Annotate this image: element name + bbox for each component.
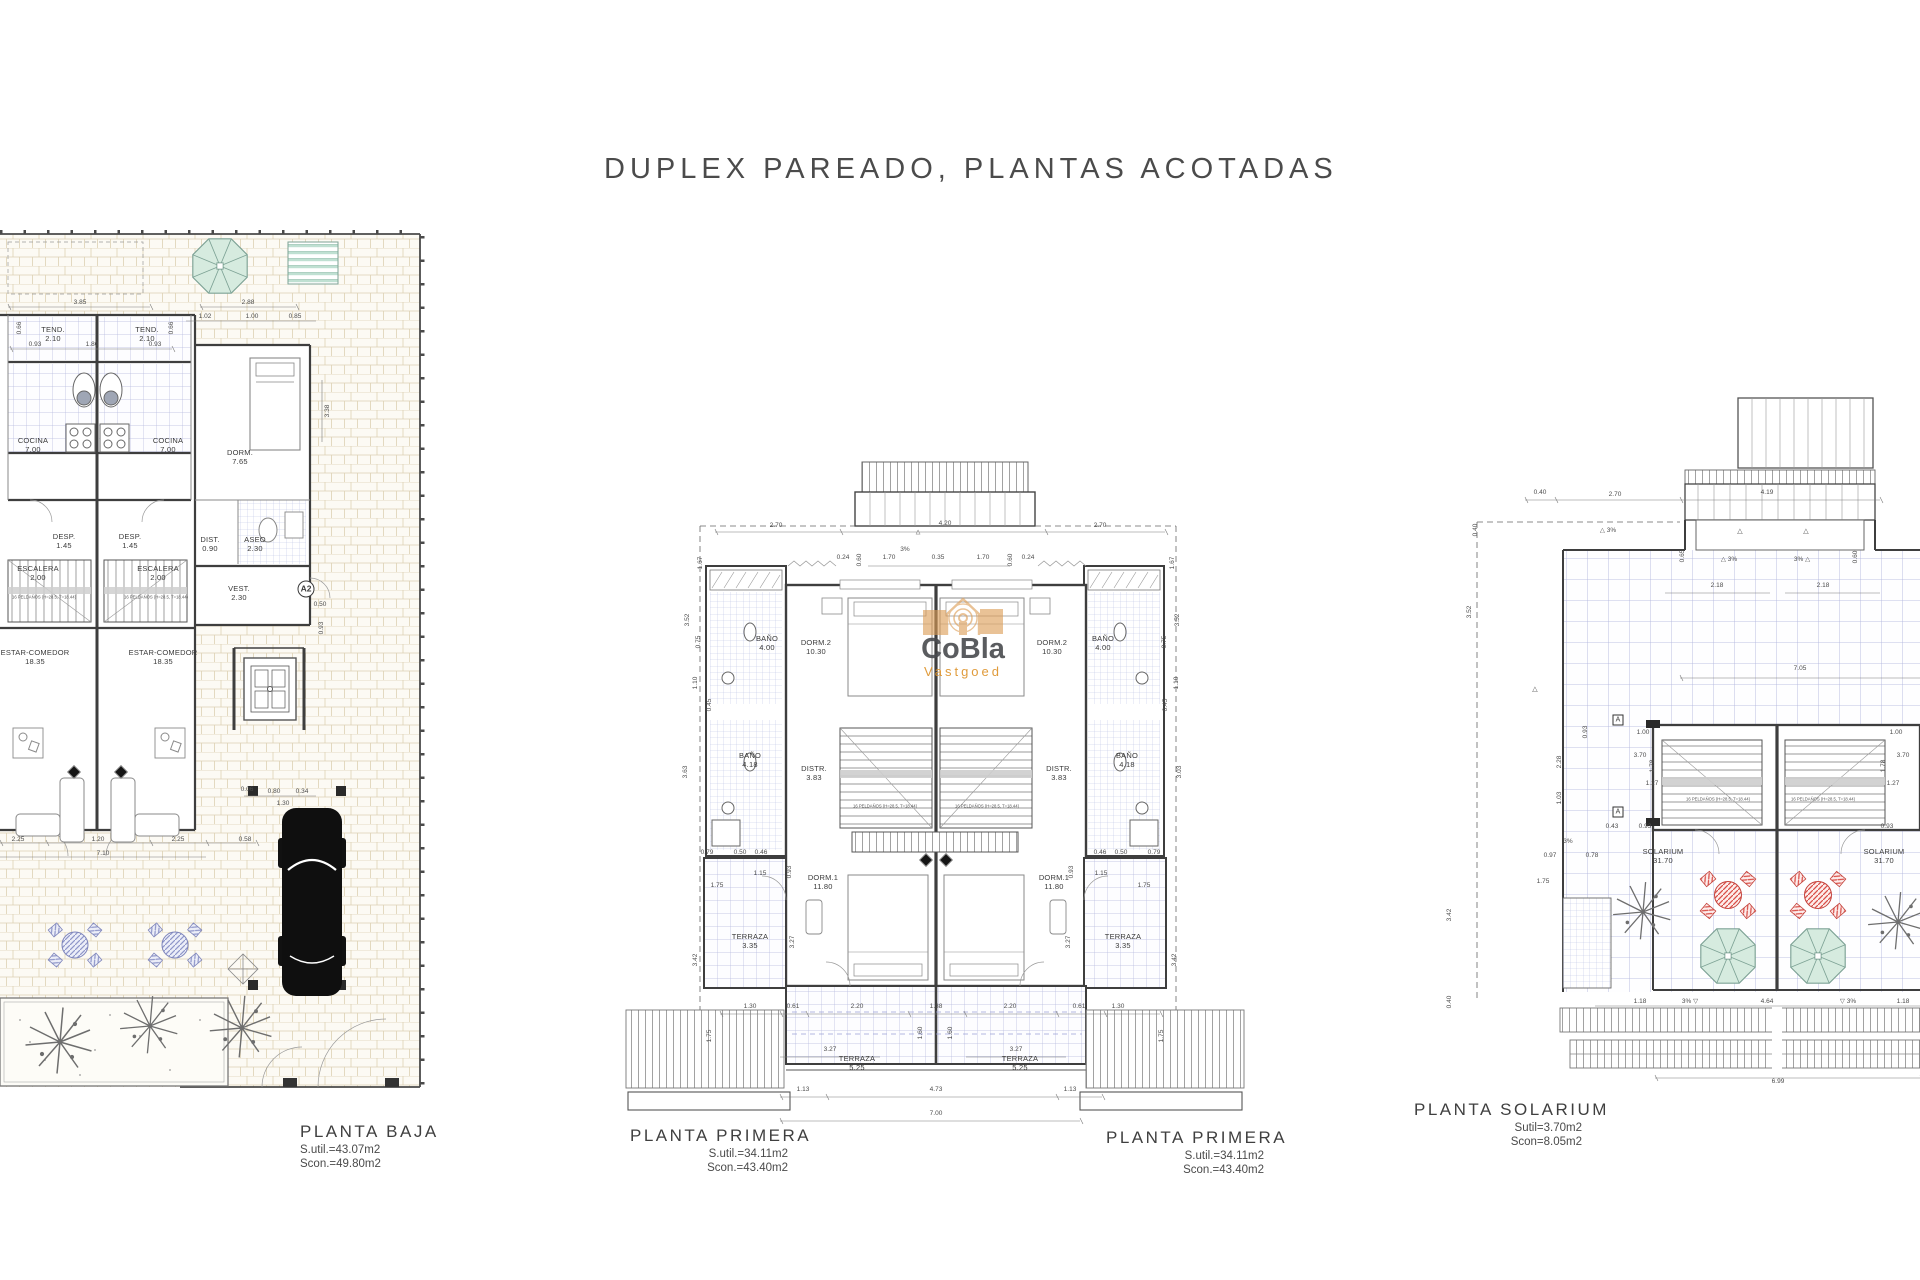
caption-planta-primera-left: PLANTA PRIMERA S.util.=34.11m2 Scon.=43.… [630,1126,788,1174]
caption-planta-primera-right: PLANTA PRIMERA S.util.=34.11m2 Scon.=43.… [1106,1128,1264,1176]
caption-planta-solarium: PLANTA SOLARIUM Sutil=3.70m2 Scon=8.05m2 [1414,1100,1582,1148]
plan-planta-baja: TEND. 2.10TEND. 2.10COCINA 7.00COCINA 7.… [0,230,430,1140]
caption-sutil: S.util.=43.07m2 [300,1144,450,1156]
caption-sutil: S.util.=34.11m2 [1106,1150,1264,1162]
caption-name: PLANTA PRIMERA [1106,1128,1264,1148]
roof-chimney [855,462,1035,526]
blueprint-page: { "title": "DUPLEX PAREADO, PLANTAS ACOT… [0,0,1920,1280]
caption-scon: Scon.=43.40m2 [1106,1164,1264,1176]
planta-primera-drawing [600,380,1250,1160]
caption-scon: Scon.=43.40m2 [630,1162,788,1174]
plan-planta-primera: BAÑO 4.00BAÑO 4.00DORM.2 10.30DORM.2 10.… [600,380,1250,1160]
caption-planta-baja: PLANTA BAJA S.util.=43.07m2 Scon.=49.80m… [300,1122,450,1170]
planta-solarium-drawing [1440,390,1920,1110]
core-walls [786,561,1086,986]
balcony-railings [1560,1004,1920,1072]
caption-name: PLANTA BAJA [300,1122,450,1142]
roof-chimney [1685,398,1875,550]
planta-baja-drawing [0,230,430,1140]
caption-scon: Scon=8.05m2 [1414,1136,1582,1148]
drawing-title: DUPLEX PAREADO, PLANTAS ACOTADAS [604,153,1338,186]
plan-planta-solarium: SOLARIUM 31.70SOLARIUM 31.7016 PELDAÑOS … [1440,390,1920,1110]
caption-scon: Scon.=49.80m2 [300,1158,450,1170]
landing-rail [852,832,1018,852]
caption-name: PLANTA PRIMERA [630,1126,788,1146]
caption-sutil: S.util.=34.11m2 [630,1148,788,1160]
caption-name: PLANTA SOLARIUM [1414,1100,1582,1120]
porch-dining-table [244,658,296,720]
car-icon [278,808,346,996]
planter-grid [1563,898,1611,988]
caption-sutil: Sutil=3.70m2 [1414,1122,1582,1134]
